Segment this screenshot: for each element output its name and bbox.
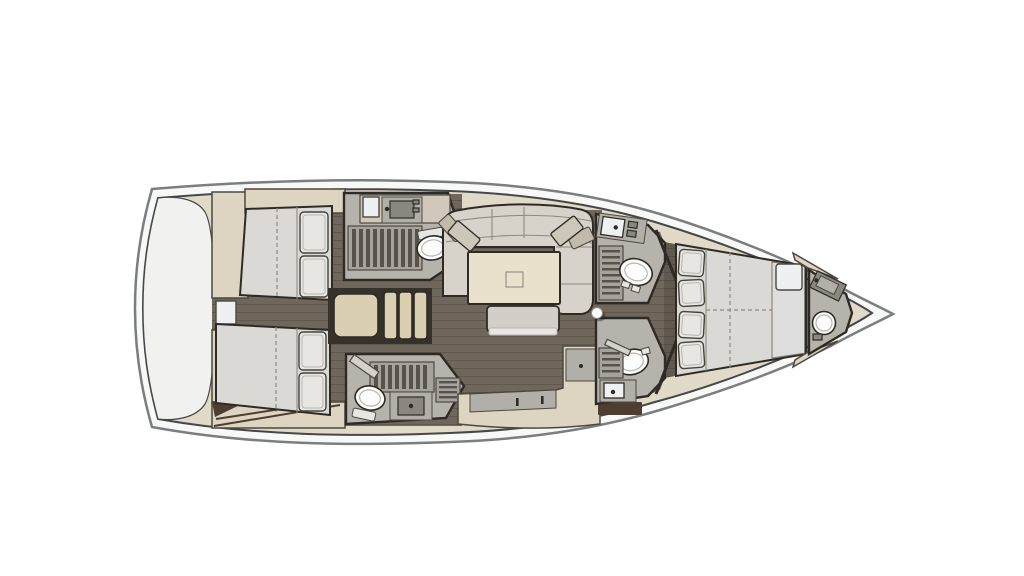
floorplan-canvas bbox=[0, 0, 1024, 576]
transom-door bbox=[216, 301, 236, 324]
companionway-steps bbox=[328, 288, 432, 344]
aft-cabin-top-bed bbox=[240, 206, 332, 300]
shower-grate bbox=[370, 362, 434, 392]
head-aft-bottom bbox=[346, 354, 464, 424]
galley-locker bbox=[598, 402, 642, 415]
sink bbox=[382, 197, 422, 223]
sink bbox=[390, 392, 432, 420]
transom-locker bbox=[143, 197, 215, 419]
sink bbox=[600, 380, 636, 402]
seat-grate bbox=[436, 378, 460, 402]
salon-bench bbox=[487, 306, 559, 335]
yacht-floorplan bbox=[0, 0, 1024, 576]
forward-cabin-bed bbox=[676, 244, 806, 376]
salon-table bbox=[468, 252, 560, 304]
aft-cabin-bottom-bed bbox=[216, 324, 330, 415]
shower-grate bbox=[599, 348, 623, 378]
shower-grate bbox=[348, 226, 422, 270]
